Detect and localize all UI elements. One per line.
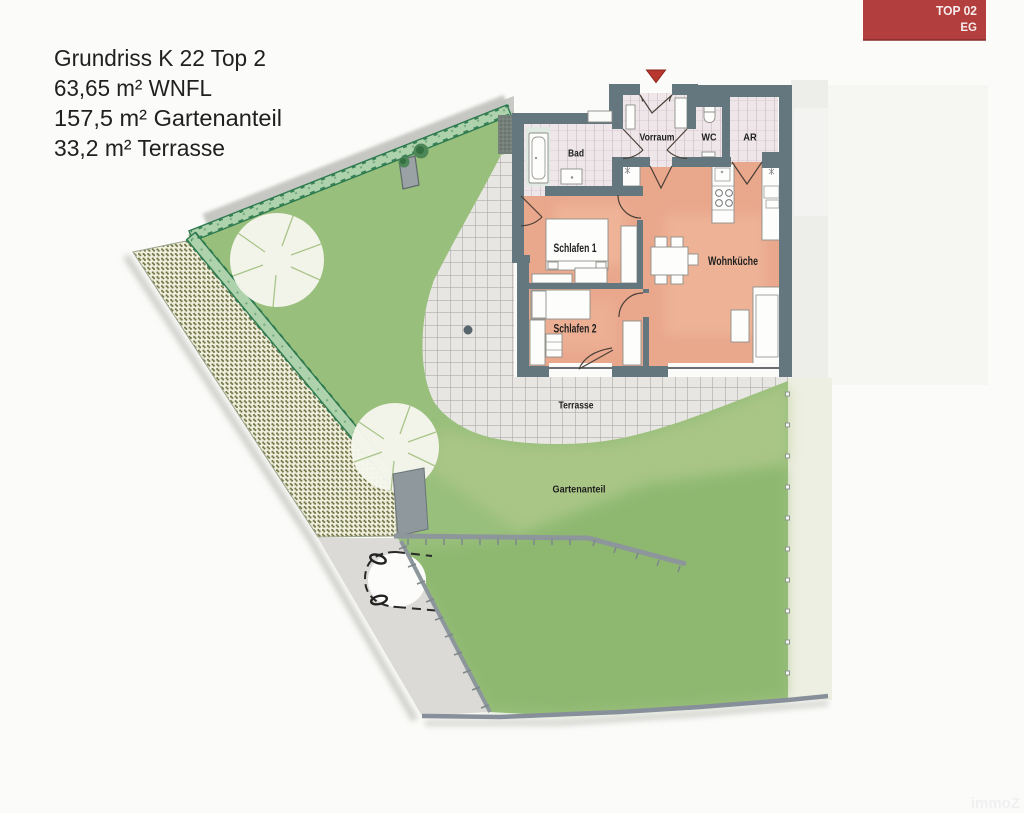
svg-text:AR: AR xyxy=(743,133,757,144)
svg-text:Schlafen 2: Schlafen 2 xyxy=(554,324,597,336)
svg-text:Grundriss K 22 Top 2: Grundriss K 22 Top 2 xyxy=(54,45,266,71)
svg-text:immoZ: immoZ xyxy=(971,795,1020,812)
svg-text:Gartenanteil: Gartenanteil xyxy=(553,485,606,496)
svg-text:157,5 m² Gartenanteil: 157,5 m² Gartenanteil xyxy=(54,105,282,131)
svg-text:TOP 02: TOP 02 xyxy=(936,4,977,18)
svg-text:Terrasse: Terrasse xyxy=(559,401,594,412)
svg-text:Schlafen 1: Schlafen 1 xyxy=(554,243,597,255)
svg-text:EG: EG xyxy=(960,22,977,34)
svg-text:WC: WC xyxy=(702,133,717,144)
svg-text:Vorraum: Vorraum xyxy=(640,133,675,144)
svg-text:Wohnküche: Wohnküche xyxy=(708,256,758,268)
svg-text:33,2 m² Terrasse: 33,2 m² Terrasse xyxy=(54,135,225,161)
svg-text:Bad: Bad xyxy=(568,149,584,160)
svg-text:63,65 m² WNFL: 63,65 m² WNFL xyxy=(54,75,212,101)
